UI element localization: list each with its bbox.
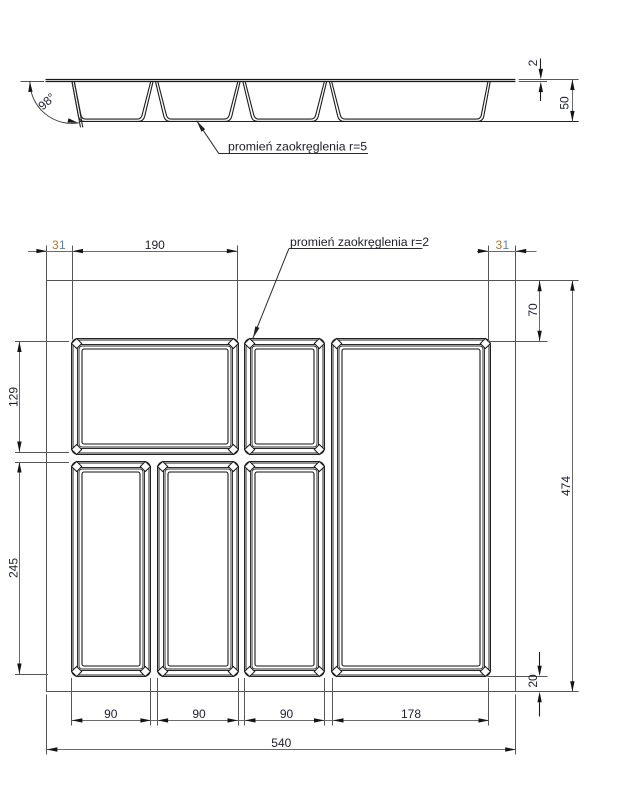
svg-text:50: 50 <box>558 96 572 110</box>
svg-text:90: 90 <box>192 707 206 721</box>
svg-text:245: 245 <box>6 558 20 578</box>
svg-text:129: 129 <box>6 387 20 407</box>
svg-text:540: 540 <box>271 736 291 750</box>
svg-text:178: 178 <box>401 707 421 721</box>
svg-text:190: 190 <box>145 238 165 252</box>
svg-text:1: 1 <box>59 238 66 252</box>
svg-text:promień zaokręglenia r=2: promień zaokręglenia r=2 <box>290 235 429 249</box>
svg-text:promień zaokręglenia r=5: promień zaokręglenia r=5 <box>228 140 367 154</box>
svg-text:90: 90 <box>280 707 294 721</box>
svg-text:3: 3 <box>495 238 502 252</box>
svg-text:20: 20 <box>526 674 540 688</box>
svg-text:90: 90 <box>104 707 118 721</box>
svg-text:1: 1 <box>502 238 509 252</box>
svg-text:70: 70 <box>526 303 540 317</box>
svg-text:2: 2 <box>526 59 540 66</box>
svg-text:474: 474 <box>559 476 573 496</box>
svg-text:3: 3 <box>52 238 59 252</box>
